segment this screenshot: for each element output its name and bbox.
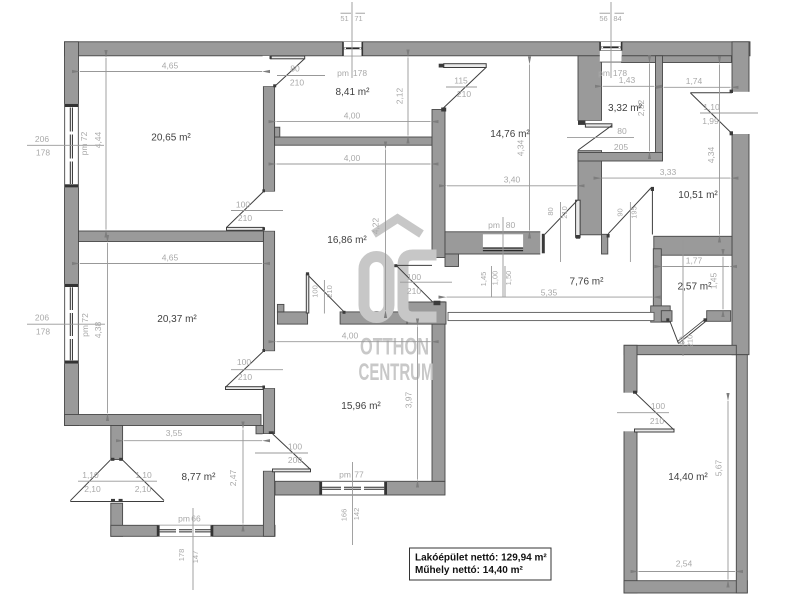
svg-text:pm 72: pm 72	[79, 131, 89, 155]
svg-text:pm: pm	[337, 68, 349, 78]
svg-text:8,41 m²: 8,41 m²	[336, 87, 371, 98]
svg-text:pm: pm	[339, 470, 351, 480]
svg-text:pm 72: pm 72	[80, 313, 90, 337]
svg-text:3,33: 3,33	[660, 167, 677, 177]
svg-text:pm: pm	[598, 68, 610, 78]
svg-text:1,10: 1,10	[703, 102, 720, 112]
svg-text:pm: pm	[488, 220, 500, 230]
svg-text:142: 142	[352, 508, 361, 521]
svg-text:7,76 m²: 7,76 m²	[570, 277, 605, 288]
svg-text:210: 210	[650, 416, 664, 426]
svg-text:1,10: 1,10	[135, 470, 152, 480]
svg-text:4,22: 4,22	[371, 217, 381, 234]
svg-text:84: 84	[613, 14, 621, 23]
svg-text:2,10: 2,10	[135, 484, 152, 494]
svg-text:210: 210	[407, 286, 421, 296]
svg-text:2,12: 2,12	[395, 87, 405, 104]
svg-text:5,35: 5,35	[541, 288, 558, 298]
svg-text:1,43: 1,43	[619, 75, 636, 85]
svg-text:166: 166	[340, 509, 349, 522]
svg-text:71: 71	[354, 14, 362, 23]
svg-text:100: 100	[237, 357, 251, 367]
svg-text:2,10: 2,10	[84, 484, 101, 494]
svg-text:3,97: 3,97	[404, 391, 414, 408]
svg-text:210: 210	[457, 89, 471, 99]
svg-text:1,99: 1,99	[702, 116, 719, 126]
svg-text:100: 100	[651, 401, 665, 411]
svg-text:1,00: 1,00	[491, 271, 500, 286]
svg-text:4,44: 4,44	[93, 131, 103, 148]
svg-text:210: 210	[290, 78, 304, 88]
svg-text:100: 100	[288, 442, 302, 452]
svg-text:4,65: 4,65	[162, 61, 179, 71]
svg-text:206: 206	[35, 313, 49, 323]
svg-text:4,34: 4,34	[706, 146, 716, 163]
svg-text:20,65 m²: 20,65 m²	[151, 133, 191, 144]
svg-text:210: 210	[560, 206, 569, 219]
svg-text:2,57 m²: 2,57 m²	[678, 282, 713, 293]
svg-text:205: 205	[614, 142, 628, 152]
svg-text:210: 210	[238, 213, 252, 223]
svg-text:14,76 m²: 14,76 m²	[490, 129, 530, 140]
svg-text:195: 195	[629, 206, 638, 219]
svg-text:4,00: 4,00	[342, 331, 359, 341]
svg-text:2,47: 2,47	[228, 469, 238, 486]
svg-text:80: 80	[290, 64, 300, 74]
svg-text:80: 80	[617, 126, 627, 136]
svg-text:178: 178	[36, 327, 50, 337]
svg-text:15,96 m²: 15,96 m²	[341, 401, 381, 412]
svg-text:147: 147	[191, 551, 200, 564]
svg-text:OTTHON: OTTHON	[360, 334, 429, 361]
svg-text:1,45: 1,45	[479, 272, 488, 287]
svg-text:5,67: 5,67	[714, 459, 724, 476]
svg-text:178: 178	[177, 549, 186, 562]
svg-text:pm: pm	[178, 514, 190, 524]
svg-text:1,77: 1,77	[686, 256, 703, 266]
svg-text:1,74: 1,74	[686, 76, 703, 86]
svg-text:51: 51	[340, 14, 348, 23]
svg-text:20,37 m²: 20,37 m²	[157, 314, 197, 325]
svg-text:80: 80	[546, 207, 555, 215]
svg-text:1,10: 1,10	[82, 470, 99, 480]
svg-text:210: 210	[238, 372, 252, 382]
svg-text:100: 100	[407, 272, 421, 282]
svg-text:100: 100	[310, 285, 319, 298]
svg-text:10,51 m²: 10,51 m²	[678, 190, 718, 201]
svg-text:8,77 m²: 8,77 m²	[182, 472, 217, 483]
svg-text:178: 178	[353, 68, 367, 78]
svg-text:77: 77	[354, 470, 364, 480]
svg-text:CENTRUM: CENTRUM	[359, 359, 434, 386]
svg-text:1,50: 1,50	[504, 271, 513, 286]
svg-text:90: 90	[616, 208, 625, 216]
svg-text:100: 100	[236, 200, 250, 210]
svg-text:Lakóépület nettó: 129,94 m²: Lakóépület nettó: 129,94 m²	[415, 553, 547, 564]
svg-text:2,54: 2,54	[676, 559, 693, 569]
svg-text:4,00: 4,00	[344, 153, 361, 163]
svg-text:Műhely nettó: 14,40 m²: Műhely nettó: 14,40 m²	[415, 565, 523, 576]
svg-text:210: 210	[325, 285, 334, 298]
svg-text:66: 66	[191, 514, 201, 524]
svg-text:16,86 m²: 16,86 m²	[327, 235, 367, 246]
svg-text:80: 80	[506, 220, 516, 230]
svg-text:210: 210	[686, 335, 695, 348]
svg-text:4,65: 4,65	[162, 253, 179, 263]
svg-text:115: 115	[454, 76, 468, 86]
svg-text:14,40 m²: 14,40 m²	[668, 472, 708, 483]
svg-text:3,55: 3,55	[166, 428, 183, 438]
svg-text:200: 200	[288, 455, 302, 465]
svg-text:4,38: 4,38	[93, 321, 103, 338]
svg-text:206: 206	[35, 134, 49, 144]
svg-text:56: 56	[599, 14, 607, 23]
svg-text:4,34: 4,34	[516, 139, 526, 156]
svg-text:4,00: 4,00	[344, 111, 361, 121]
svg-text:3,40: 3,40	[504, 175, 521, 185]
svg-text:178: 178	[36, 148, 50, 158]
svg-text:3,32 m²: 3,32 m²	[608, 103, 643, 114]
